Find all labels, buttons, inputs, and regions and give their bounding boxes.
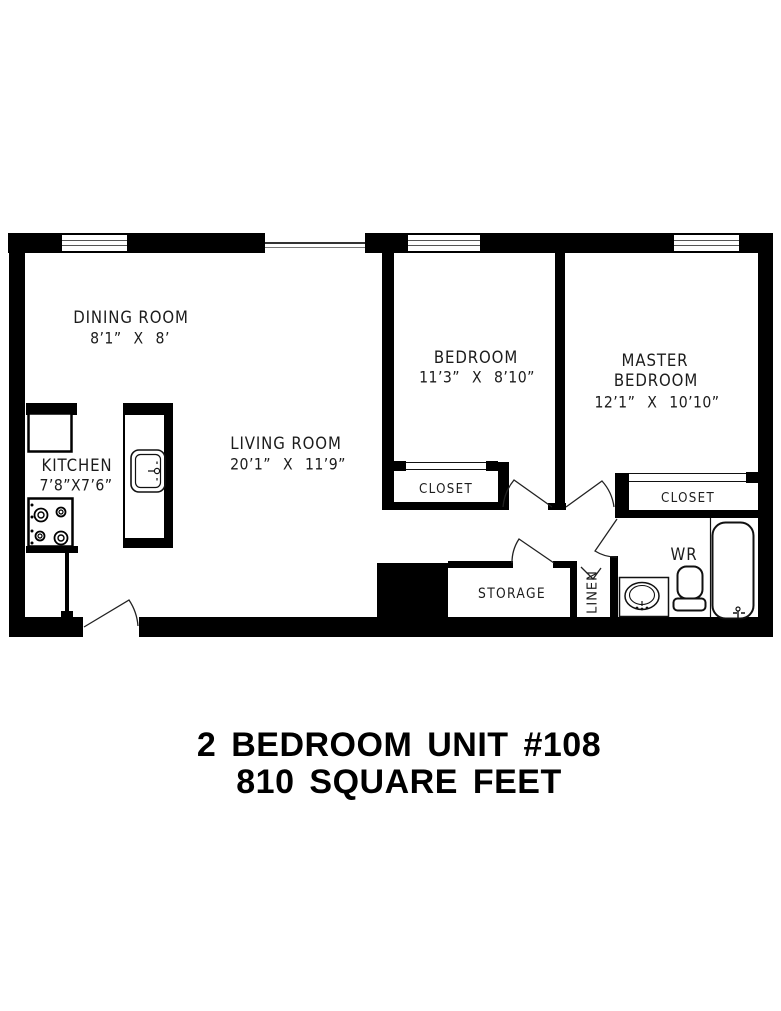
closet-door-cap (394, 461, 406, 471)
living-room-dims: 20’1” X 11’9” (230, 455, 346, 474)
toilet-icon (674, 567, 706, 611)
stove-icon (29, 499, 73, 547)
bedroom-dims: 11’3” X 8’10” (419, 368, 535, 387)
stove-bottom-wall (26, 546, 78, 553)
master-bedroom-label-line2: BEDROOM (614, 371, 698, 391)
storage-linen-divider (570, 561, 577, 617)
master-door-swing-icon (566, 481, 614, 507)
living-room-label: LIVING ROOM (230, 434, 341, 454)
master-bedroom-dims: 12’1” X 10’10” (594, 393, 719, 412)
door-hinge-post (548, 503, 566, 510)
entry-door-swing-icon (84, 600, 138, 627)
sliding-door-icon (265, 242, 365, 248)
window-icon (674, 233, 739, 253)
kitchen-thin-wall (65, 553, 69, 617)
wall-left (9, 233, 25, 637)
master-closet-label: CLOSET (661, 490, 715, 506)
bedroom-closet-label: CLOSET (419, 481, 473, 497)
bedroom-closet-bottom-wall (382, 502, 509, 510)
kitchen-dims: 7’8”X7’6” (40, 476, 113, 495)
title-block: 2 BEDROOM UNIT #108 810 SQUARE FEET (197, 727, 601, 801)
linen-label: LINEN (586, 570, 601, 614)
window-icon (408, 233, 480, 253)
wall-right (758, 233, 773, 637)
bathtub-icon (711, 518, 754, 619)
title-line1: 2 BEDROOM UNIT #108 (197, 727, 601, 764)
window-icon (62, 233, 127, 253)
wall-top-segment (365, 233, 408, 253)
closet-door-cap (486, 461, 498, 471)
refrigerator-icon (29, 414, 72, 452)
wall-bottom-segment (139, 617, 773, 637)
wall-top-segment (480, 233, 674, 253)
title-line2: 810 SQUARE FEET (197, 764, 601, 801)
bathroom-sink-icon (620, 578, 669, 617)
closet-door-icon (394, 462, 498, 470)
storage-top-wall (448, 561, 513, 568)
kitchen-sink-icon (131, 450, 165, 492)
counter-left-line (123, 415, 125, 538)
linen-right-wall (610, 556, 618, 617)
wall-living-bedroom (382, 253, 394, 510)
master-bedroom-label-line1: MASTER (622, 351, 689, 371)
floor-plan-page: DINING ROOM 8’1” X 8’ KITCHEN 7’8”X7’6” … (0, 0, 781, 1011)
wall-bottom-segment (9, 617, 83, 637)
kitchen-label: KITCHEN (42, 456, 113, 476)
bedroom-door-swing-icon (503, 480, 552, 507)
dining-room-label: DINING ROOM (73, 308, 189, 328)
master-closet-bottom-wall (615, 510, 758, 518)
storage-label: STORAGE (478, 586, 546, 602)
storage-door-swing-icon (512, 539, 554, 563)
closet-door-cap (746, 472, 758, 483)
washroom-label: WR (671, 545, 698, 565)
dining-room-dims: 8’1” X 8’ (90, 329, 170, 348)
bedroom-label: BEDROOM (434, 348, 518, 368)
wall-top-segment (127, 233, 265, 253)
kitchen-thin-wall-cap (61, 611, 73, 618)
bathroom-door-swing-icon (595, 519, 617, 557)
wall-bedroom-master (555, 253, 565, 505)
counter-right-wall (164, 403, 173, 548)
counter-bottom-wall (123, 538, 173, 548)
storage-left-block (377, 563, 448, 617)
closet-door-icon (629, 473, 746, 482)
kitchen-upper-wall (26, 403, 77, 415)
